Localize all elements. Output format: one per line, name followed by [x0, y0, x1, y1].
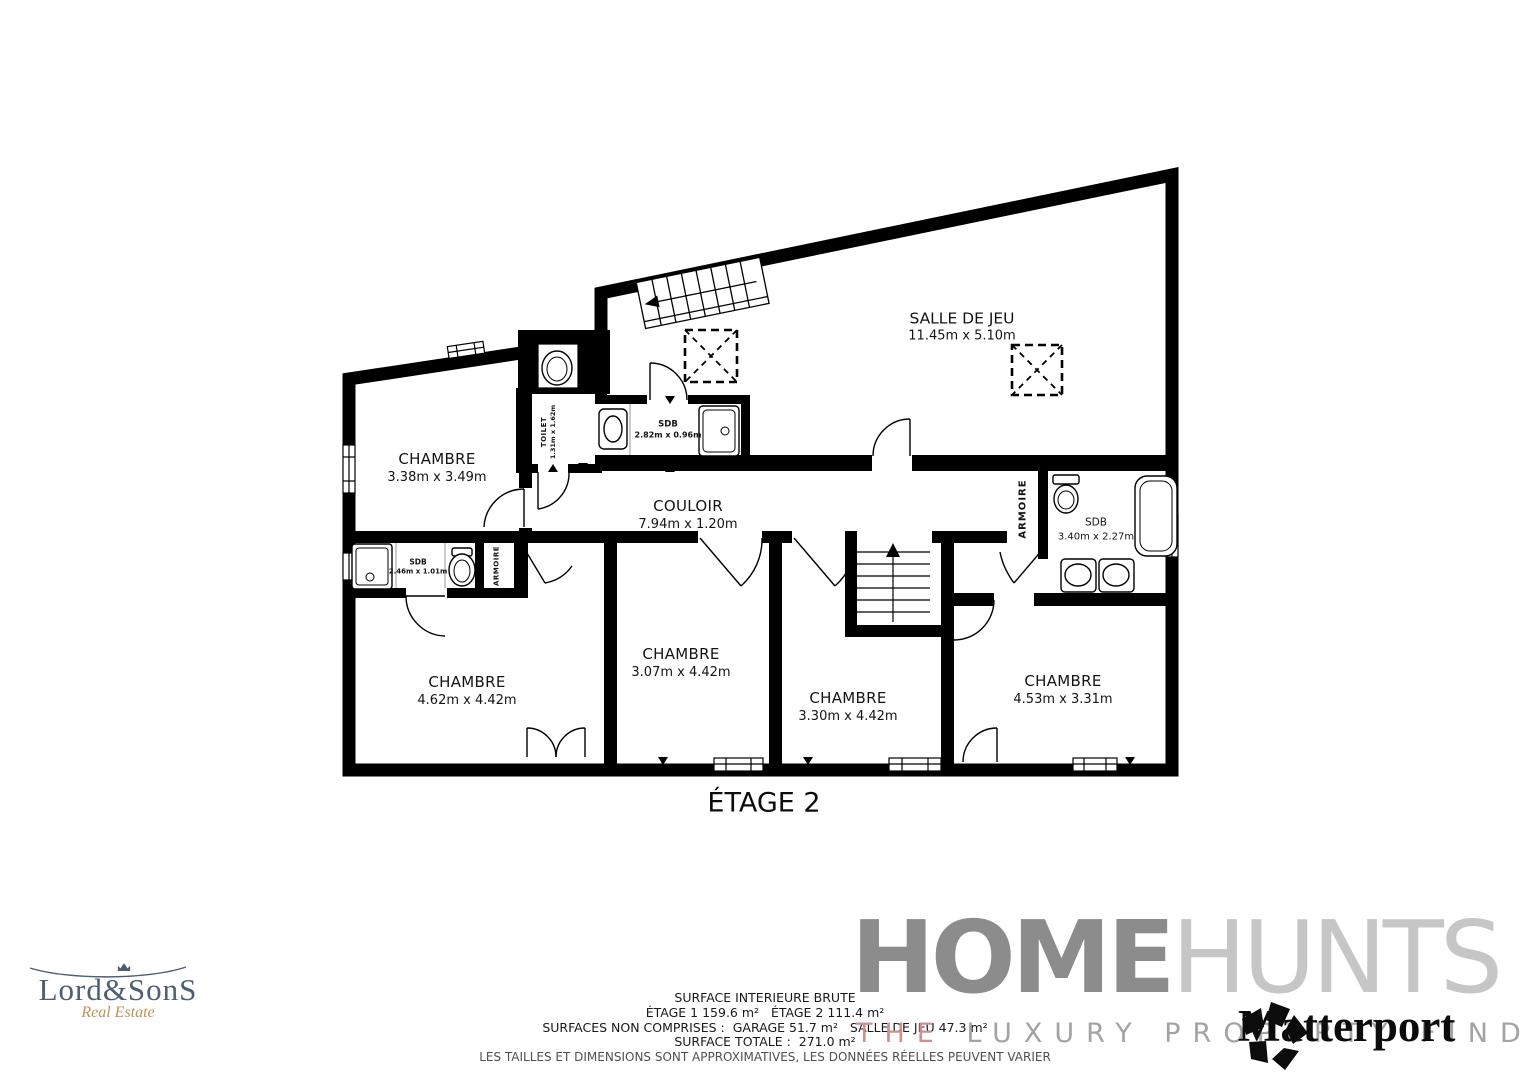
homehunts-word2: HUNTS: [1172, 899, 1500, 1016]
room-label-chambre-s1: CHAMBRE 3.07m x 4.42m: [631, 645, 730, 681]
matterport-logo: Matterport: [1238, 1000, 1455, 1052]
room-label-chambre-se: CHAMBRE 4.53m x 3.31m: [1013, 672, 1112, 708]
footer-line-totale: SURFACE TOTALE : 271.0 m²: [674, 1034, 855, 1049]
footer-line-etages: ÉTAGE 1 159.6 m² ÉTAGE 2 111.4 m²: [646, 1005, 885, 1020]
room-label-sdb-left: SDB 2.46m x 1.01m: [389, 558, 448, 577]
footer-line-surface-brute: SURFACE INTERIEURE BRUTE: [674, 990, 855, 1005]
room-label-toilet: TOILET 1.31m x 1.62m: [540, 405, 558, 459]
room-label-chambre-nw: CHAMBRE 3.38m x 3.49m: [387, 450, 486, 486]
floor-title: ÉTAGE 2: [707, 788, 820, 819]
sink-sdb-top: [599, 409, 627, 449]
bathtub: [1135, 476, 1177, 556]
room-label-chambre-sw: CHAMBRE 4.62m x 4.42m: [417, 673, 516, 709]
room-label-armoire-left: ARMOIRE: [492, 546, 501, 586]
room-label-couloir: COULOIR 7.94m x 1.20m: [638, 497, 737, 533]
room-label-chambre-s2: CHAMBRE 3.30m x 4.42m: [798, 689, 897, 725]
double-sinks: [1061, 559, 1134, 592]
lordsons-logo: Lord&SonS Real Estate: [28, 972, 208, 1022]
room-label-sdb-top: SDB 2.82m x 0.96m: [635, 419, 702, 440]
toilet-sdb-right: [1053, 475, 1079, 513]
footer-line-disclaimer: LES TAILLES ET DIMENSIONS SONT APPROXIMA…: [479, 1050, 1051, 1064]
staircase-middle: [857, 543, 930, 622]
lordsons-swash: [28, 966, 188, 978]
shower-sdb-left: [352, 544, 392, 589]
wc-niche: [538, 344, 578, 388]
homehunts-logo: HOMEHUNTS: [851, 908, 1499, 1008]
room-label-armoire-right: ARMOIRE: [1017, 479, 1030, 538]
homehunts-word1: HOME: [851, 899, 1172, 1016]
homehunts-tagline-the: THE: [856, 1018, 946, 1049]
room-label-sdb-right: SDB 3.40m x 2.27m: [1058, 517, 1134, 544]
matterport-icon: [1238, 1000, 1310, 1072]
toilet-sdb-left: [449, 548, 475, 586]
shower-sdb-top: [699, 406, 739, 456]
room-label-salle-de-jeu: SALLE DE JEU 11.45m x 5.10m: [908, 308, 1015, 345]
floorplan-page: { "floor_plan": { "title": "ÉTAGE 2", "r…: [0, 0, 1527, 1080]
